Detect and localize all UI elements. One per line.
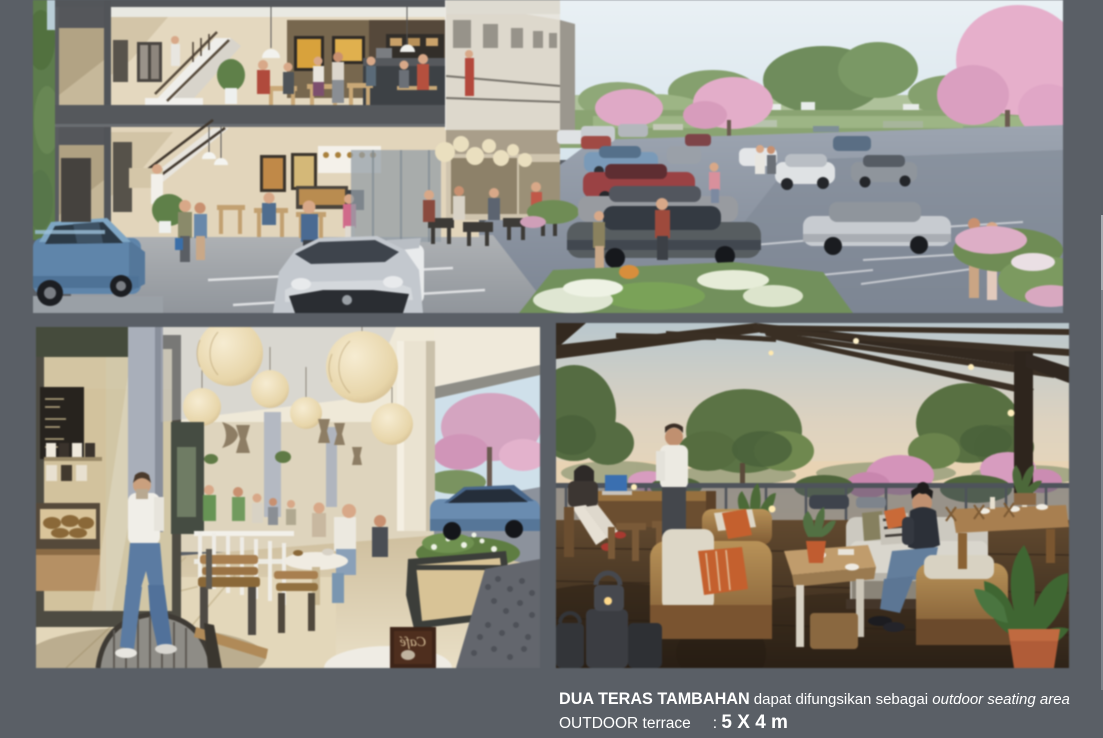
svg-text:Café: Café: [399, 635, 426, 650]
